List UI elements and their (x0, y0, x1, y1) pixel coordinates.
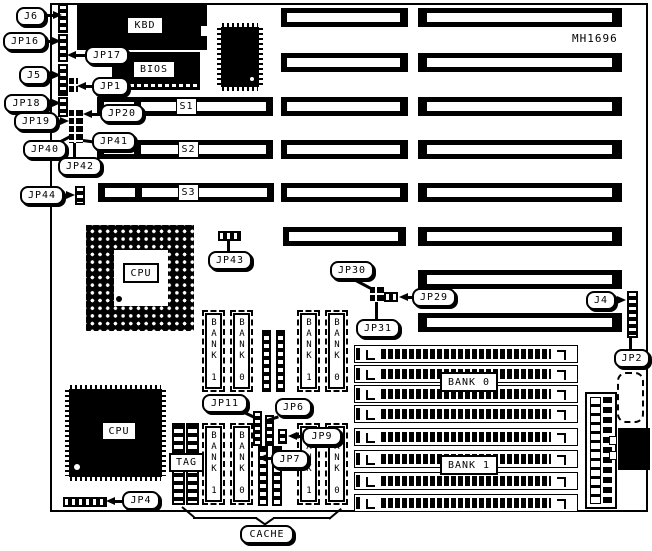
dip-chip (262, 330, 271, 392)
j4-header (627, 291, 638, 338)
bus-slot (418, 183, 622, 202)
jp29-header (384, 292, 398, 302)
slot-s3-label: S3 (178, 184, 199, 201)
cpu-socket-label: CPU (123, 263, 159, 283)
bus-slot (418, 140, 622, 159)
simm-slot-bank1 (354, 494, 578, 512)
slot-s2-label: S2 (178, 141, 199, 158)
bank1-label: BANK 1 (440, 455, 498, 475)
simm-slot-bank0 (354, 405, 578, 423)
callout-jp29: JP29 (412, 288, 456, 307)
cache-bank0-socket: BANK 0 (325, 310, 348, 392)
callout-jp16: JP16 (3, 32, 47, 51)
battery (617, 372, 644, 423)
cpu-qfp-label: CPU (101, 421, 137, 441)
din-tab (609, 451, 617, 460)
callout-jp18: JP18 (4, 94, 49, 113)
bus-slot (281, 183, 408, 202)
leader-jp18-arrow (52, 99, 61, 107)
callout-j6: J6 (16, 7, 46, 26)
bus-slot (418, 313, 622, 332)
callout-jp1: JP1 (92, 77, 129, 96)
bus-slot (418, 270, 622, 289)
callout-jp11: JP11 (202, 394, 248, 413)
pin1-marker (116, 296, 122, 302)
part-number: MH1696 (572, 32, 618, 45)
callout-j5: J5 (19, 66, 49, 85)
bus-slot (283, 227, 406, 246)
bus-slot (281, 8, 408, 27)
din-tab (609, 436, 617, 445)
motherboard-diagram: MH1696 S1 S2 S3 KBD BIOS (0, 0, 652, 551)
callout-jp44: JP44 (20, 186, 64, 205)
bus-slot (418, 8, 622, 27)
bus-slot (418, 97, 622, 116)
jp43-header (218, 231, 241, 241)
leader-jp44-arrow (66, 191, 75, 199)
cache-bank0-socket: BANK 0 (230, 423, 253, 505)
bus-slot (281, 140, 408, 159)
leader-jp42 (73, 143, 76, 158)
callout-jp20: JP20 (100, 104, 144, 123)
j5-header (58, 64, 68, 96)
slot-s1-label: S1 (176, 98, 197, 115)
leader-jp19-arrow (60, 117, 69, 125)
callout-jp2: JP2 (614, 349, 650, 368)
leader-jp16-arrow (52, 37, 61, 45)
callout-jp6: JP6 (275, 398, 312, 417)
callout-jp42: JP42 (58, 157, 102, 176)
leader-j4-arrow (617, 296, 626, 304)
cache-bracket (273, 517, 331, 519)
chipset-qfp-chip (217, 23, 263, 91)
callout-jp43: JP43 (208, 251, 252, 270)
leader-j6-arrow (53, 11, 62, 19)
callout-jp30: JP30 (330, 261, 374, 280)
callout-jp19: JP19 (14, 112, 58, 131)
jp44-header (75, 186, 85, 205)
callout-cache: CACHE (240, 525, 294, 544)
callout-jp7: JP7 (271, 450, 309, 469)
bus-slot (281, 97, 408, 116)
callout-jp40: JP40 (23, 140, 67, 159)
callout-jp9: JP9 (302, 427, 342, 446)
bus-slot (418, 227, 622, 246)
jp9-header (278, 429, 287, 444)
callout-j4: J4 (586, 291, 616, 310)
bus-slot (281, 53, 408, 72)
cache-bank1-socket: BANK 1 (202, 310, 225, 392)
bank0-label: BANK 0 (440, 372, 498, 392)
leader-j5-arrow (52, 71, 61, 79)
cache-bracket (193, 517, 257, 519)
callout-jp41: JP41 (92, 132, 136, 151)
cache-bank1-socket: BANK 1 (297, 310, 320, 392)
callout-jp31: JP31 (356, 319, 400, 338)
kbd-chip-label: KBD (126, 16, 164, 35)
callout-jp17: JP17 (85, 46, 129, 65)
dip-chip (276, 330, 285, 392)
simm-slot-bank0 (354, 345, 578, 363)
jp4-header (63, 497, 107, 507)
callout-jp4: JP4 (122, 491, 160, 510)
cache-bank0-socket: BANK 0 (230, 310, 253, 392)
simm-slot-bank1 (354, 428, 578, 446)
leader-jp31 (375, 302, 378, 320)
tag-label: TAG (169, 453, 204, 472)
cache-bank1-socket: BANK 1 (202, 423, 225, 505)
kbd-chip-notch (201, 26, 208, 36)
jp19-jp42-block (69, 110, 83, 143)
keyboard-din-connector (618, 428, 650, 470)
bus-slot (418, 53, 622, 72)
bios-chip-label: BIOS (132, 60, 176, 79)
